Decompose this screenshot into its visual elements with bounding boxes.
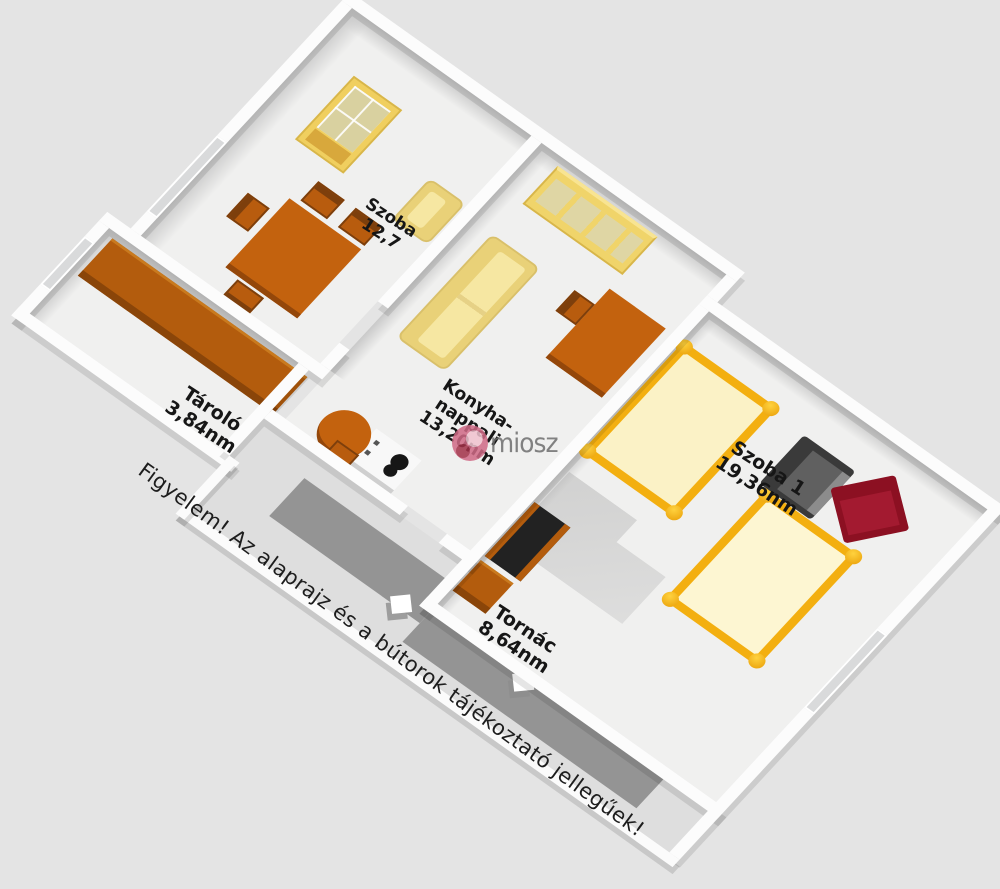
stove-knobs [373, 440, 380, 446]
watermark-brand: miosz [490, 428, 558, 459]
porch-step [390, 594, 412, 614]
watermark: miosz [452, 425, 564, 461]
armchair-seat [840, 490, 900, 535]
watermark-logo-icon [452, 425, 488, 461]
floorplan-scene: Szoba 12,7 Tároló 3,84nm Konyha- nappali… [0, 0, 1000, 889]
